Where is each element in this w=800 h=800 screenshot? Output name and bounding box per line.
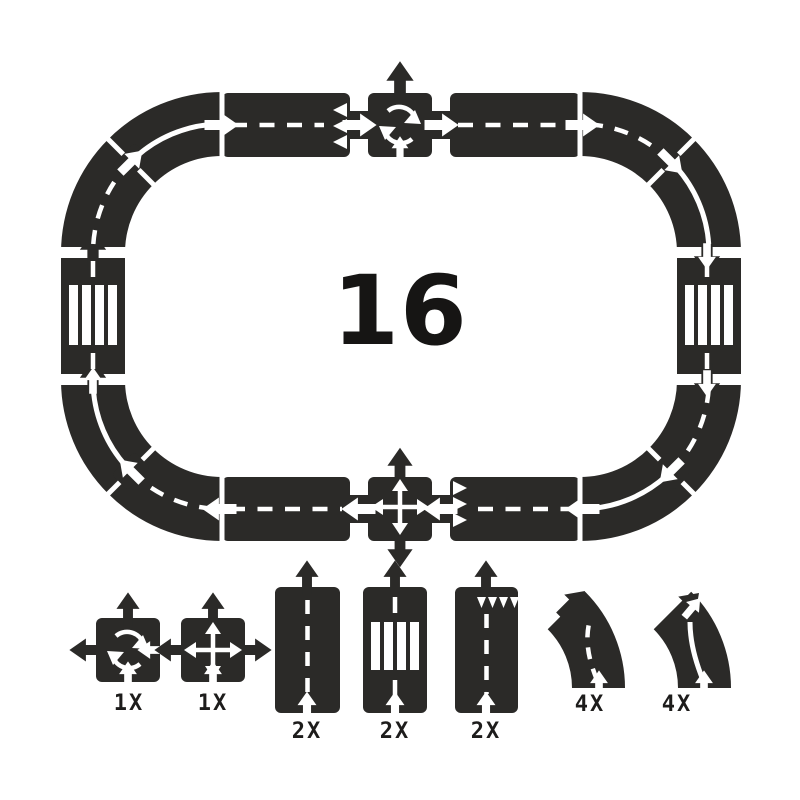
legend-qty-give-way: 2X — [446, 719, 526, 745]
legend-qty-intersection: 1X — [173, 691, 253, 717]
legend-piece-crossing — [363, 560, 427, 719]
legend-qty-crossing: 2X — [355, 719, 435, 745]
legend-qty-straight: 2X — [267, 719, 347, 745]
legend-piece-curve-solid — [654, 584, 731, 696]
legend-qty-curve-solid: 4X — [637, 692, 717, 718]
total-count-label: 16 — [330, 256, 470, 366]
legend-qty-roundabout: 1X — [89, 691, 169, 717]
legend-qty-curve-dashed: 4X — [550, 692, 630, 718]
track-diagram — [0, 0, 800, 800]
legend-piece-curve-dashed — [548, 582, 625, 696]
legend-piece-give-way — [455, 560, 519, 719]
legend-piece-intersection — [154, 592, 271, 687]
legend-piece-straight — [275, 560, 340, 719]
legend-piece-roundabout — [69, 592, 163, 687]
product-image: 16 1X 1X 2X 2X 2X 4X 4X — [0, 0, 800, 800]
